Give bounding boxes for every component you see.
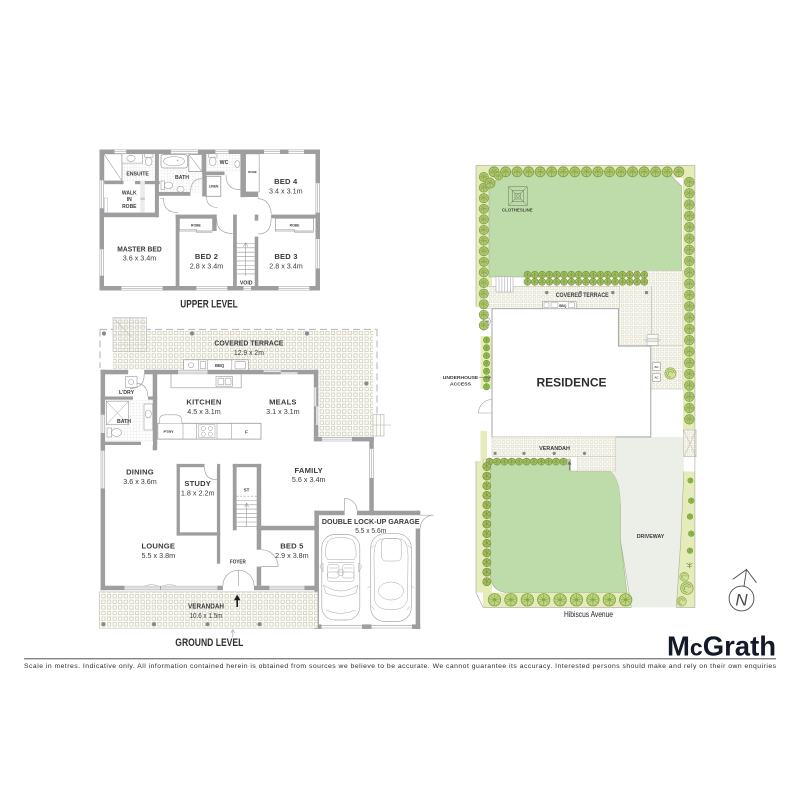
svg-text:ROBE: ROBE bbox=[248, 170, 257, 174]
svg-text:BBQ: BBQ bbox=[559, 304, 567, 308]
svg-text:2.9 x 3.8m: 2.9 x 3.8m bbox=[275, 551, 309, 560]
svg-text:ROBE: ROBE bbox=[122, 204, 137, 210]
svg-text:UNDERHOUSE: UNDERHOUSE bbox=[443, 375, 479, 380]
svg-text:ROBE: ROBE bbox=[191, 224, 202, 228]
svg-text:VOID: VOID bbox=[240, 280, 253, 286]
svg-text:ENSUITE: ENSUITE bbox=[126, 172, 149, 178]
svg-text:5.6 x 3.4m: 5.6 x 3.4m bbox=[292, 475, 326, 484]
svg-text:5.5 x 5.6m: 5.5 x 5.6m bbox=[355, 526, 386, 535]
svg-text:ST: ST bbox=[244, 488, 250, 493]
svg-text:KITCHEN: KITCHEN bbox=[186, 398, 221, 407]
svg-text:BED 3: BED 3 bbox=[274, 252, 297, 261]
svg-text:DINING: DINING bbox=[126, 468, 154, 477]
svg-text:CLOTHESLINE: CLOTHESLINE bbox=[502, 208, 533, 213]
svg-text:ACCESS: ACCESS bbox=[450, 381, 471, 386]
svg-text:3.6 x 3.6m: 3.6 x 3.6m bbox=[123, 477, 157, 486]
svg-text:DOUBLE LOCK-UP GARAGE: DOUBLE LOCK-UP GARAGE bbox=[322, 517, 420, 526]
svg-text:FAMILY: FAMILY bbox=[295, 466, 323, 475]
svg-text:BBQ: BBQ bbox=[215, 363, 225, 368]
svg-text:F: F bbox=[245, 429, 248, 434]
svg-text:MEALS: MEALS bbox=[269, 398, 297, 407]
svg-text:10.6 x 1.5m: 10.6 x 1.5m bbox=[190, 611, 223, 620]
svg-text:MASTER BED: MASTER BED bbox=[117, 244, 162, 253]
svg-text:N: N bbox=[735, 591, 748, 610]
svg-text:Scale in metres. Indicative on: Scale in metres. Indicative only. All in… bbox=[24, 663, 777, 670]
svg-text:DRIVEWAY: DRIVEWAY bbox=[637, 534, 665, 540]
svg-text:COVERED TERRACE: COVERED TERRACE bbox=[556, 293, 609, 299]
svg-text:UPPER LEVEL: UPPER LEVEL bbox=[180, 298, 238, 310]
svg-text:COVERED TERRACE: COVERED TERRACE bbox=[214, 339, 283, 348]
svg-text:3.4 x 3.1m: 3.4 x 3.1m bbox=[269, 186, 303, 195]
svg-text:AC: AC bbox=[655, 376, 659, 380]
svg-text:AC: AC bbox=[655, 365, 659, 369]
svg-text:Hibiscus Avenue: Hibiscus Avenue bbox=[564, 609, 613, 619]
svg-text:McGrath: McGrath bbox=[667, 631, 776, 662]
svg-text:3.6 x 3.4m: 3.6 x 3.4m bbox=[123, 253, 157, 262]
svg-text:BATH: BATH bbox=[175, 175, 189, 181]
svg-text:2.8 x 3.4m: 2.8 x 3.4m bbox=[190, 261, 224, 270]
svg-text:BED 4: BED 4 bbox=[274, 177, 298, 186]
svg-text:VERANDAH: VERANDAH bbox=[188, 602, 224, 611]
svg-text:LINEN: LINEN bbox=[209, 184, 219, 188]
svg-text:2.8 x 3.4m: 2.8 x 3.4m bbox=[269, 261, 303, 270]
svg-text:ROBE: ROBE bbox=[290, 224, 301, 228]
svg-text:STUDY: STUDY bbox=[184, 479, 211, 488]
svg-text:4.5 x 3.1m: 4.5 x 3.1m bbox=[187, 407, 221, 416]
svg-text:PTRY: PTRY bbox=[164, 430, 174, 434]
svg-text:WALK: WALK bbox=[122, 191, 137, 197]
svg-text:BED 2: BED 2 bbox=[195, 252, 218, 261]
svg-text:L’DRY: L’DRY bbox=[119, 390, 135, 396]
svg-text:12.9 x 2m: 12.9 x 2m bbox=[234, 348, 264, 357]
svg-text:5.5 x 3.8m: 5.5 x 3.8m bbox=[142, 551, 176, 560]
svg-text:IN: IN bbox=[127, 197, 132, 203]
svg-text:LOUNGE: LOUNGE bbox=[141, 542, 175, 551]
svg-text:BED 5: BED 5 bbox=[280, 542, 304, 551]
svg-text:VERANDAH: VERANDAH bbox=[539, 446, 570, 452]
svg-text:BATH: BATH bbox=[117, 419, 131, 425]
svg-text:RESIDENCE: RESIDENCE bbox=[537, 376, 607, 390]
svg-text:WC: WC bbox=[220, 160, 229, 166]
svg-text:1.8 x 2.2m: 1.8 x 2.2m bbox=[181, 488, 215, 497]
svg-text:GROUND LEVEL: GROUND LEVEL bbox=[175, 637, 243, 649]
svg-text:3.1 x 3.1m: 3.1 x 3.1m bbox=[266, 407, 300, 416]
svg-text:FOYER: FOYER bbox=[230, 560, 246, 566]
